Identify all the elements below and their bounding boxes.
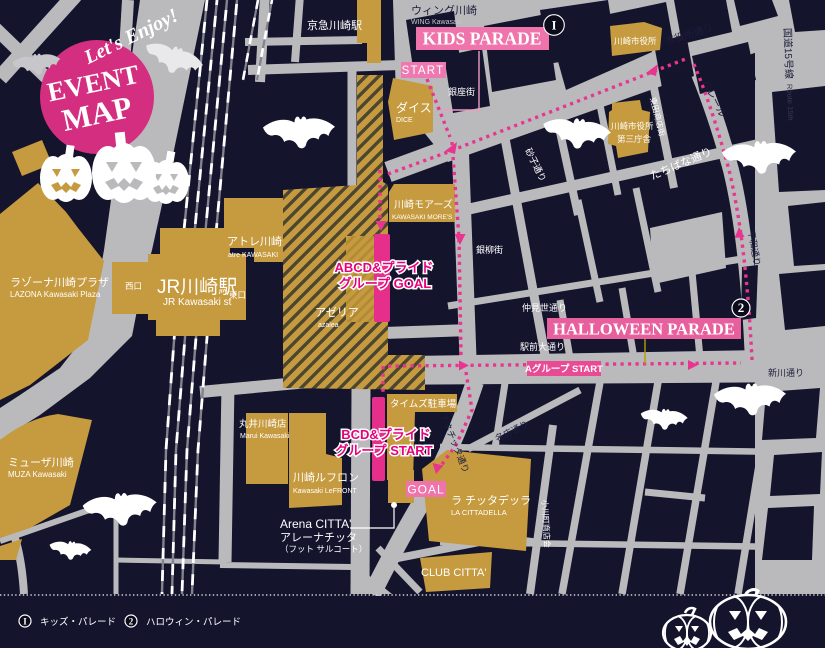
svg-text:azalea: azalea [318, 322, 339, 329]
svg-text:LAZONA Kawasaki Plaza: LAZONA Kawasaki Plaza [10, 290, 101, 299]
svg-text:START: START [402, 65, 445, 77]
svg-text:GOAL: GOAL [407, 483, 444, 497]
svg-text:キッズ・パレード: キッズ・パレード [40, 616, 116, 628]
svg-text:タイムズ駐車場: タイムズ駐車場 [390, 398, 457, 410]
svg-text:ウィング川崎: ウィング川崎 [411, 3, 477, 17]
svg-text:仲見世通り: 仲見世通り [522, 302, 567, 313]
svg-text:LA CITTADELLA: LA CITTADELLA [451, 508, 507, 517]
svg-text:Marui Kawasaki: Marui Kawasaki [240, 433, 290, 440]
svg-text:銀座街: 銀座街 [448, 86, 475, 97]
svg-text:ラ チッタデッラ: ラ チッタデッラ [451, 493, 531, 507]
svg-text:駅前大通り: 駅前大通り [520, 341, 565, 352]
svg-text:Arena CITTA': Arena CITTA' [280, 517, 351, 531]
svg-text:京急川崎駅: 京急川崎駅 [307, 18, 362, 32]
svg-text:西口: 西口 [125, 281, 142, 291]
svg-text:銀柳街: 銀柳街 [476, 244, 503, 255]
svg-text:（フット サルコート）: （フット サルコート） [280, 544, 367, 554]
svg-text:アゼリア: アゼリア [315, 306, 359, 319]
svg-text:HALLOWEEN PARADE: HALLOWEEN PARADE [553, 320, 735, 339]
svg-text:新川通り: 新川通り [768, 367, 804, 378]
svg-text:DICE: DICE [396, 117, 413, 124]
svg-text:2: 2 [738, 300, 745, 315]
svg-text:BCD&プライド: BCD&プライド [341, 427, 431, 442]
svg-text:第三庁舎: 第三庁舎 [617, 134, 652, 144]
svg-text:JR Kawasaki st: JR Kawasaki st [163, 297, 232, 308]
svg-text:Route 15th: Route 15th [785, 84, 795, 121]
svg-text:MUZA Kawasaki: MUZA Kawasaki [8, 470, 67, 479]
svg-text:ラゾーナ川崎プラザ: ラゾーナ川崎プラザ [10, 275, 109, 289]
svg-text:I: I [552, 19, 557, 33]
svg-text:川崎市役所: 川崎市役所 [614, 36, 657, 46]
svg-text:ダイス: ダイス [396, 100, 432, 115]
svg-text:atre KAWASAKI: atre KAWASAKI [228, 252, 278, 259]
svg-text:KAWASAKI MORE'S: KAWASAKI MORE'S [392, 214, 453, 221]
svg-text:WING Kawasaki: WING Kawasaki [411, 19, 462, 26]
svg-text:ミューザ川崎: ミューザ川崎 [8, 455, 74, 469]
svg-text:川崎ルフロン: 川崎ルフロン [293, 470, 359, 484]
svg-text:2: 2 [129, 617, 134, 627]
svg-text:アトレ川崎: アトレ川崎 [227, 234, 282, 248]
svg-text:グループ START: グループ START [335, 443, 432, 458]
svg-text:東口: 東口 [229, 290, 246, 300]
svg-text:ハロウィン・パレード: ハロウィン・パレード [146, 617, 241, 628]
svg-text:Aグループ START: Aグループ START [525, 363, 603, 375]
svg-text:ABCD&プライド: ABCD&プライド [335, 260, 434, 275]
svg-text:丸井川崎店: 丸井川崎店 [239, 418, 287, 430]
svg-text:川崎市役所: 川崎市役所 [611, 121, 654, 131]
svg-text:グループ GOAL: グループ GOAL [339, 276, 431, 291]
svg-text:CLUB CITTA': CLUB CITTA' [421, 567, 486, 579]
svg-text:KIDS PARADE: KIDS PARADE [423, 29, 542, 49]
svg-text:Kawasaki LeFRONT: Kawasaki LeFRONT [293, 488, 358, 495]
svg-text:アレーナチッタ: アレーナチッタ [280, 531, 357, 544]
svg-text:I: I [23, 617, 27, 627]
svg-text:川崎モアーズ: 川崎モアーズ [394, 198, 453, 211]
svg-text:JR川崎駅: JR川崎駅 [157, 276, 237, 298]
